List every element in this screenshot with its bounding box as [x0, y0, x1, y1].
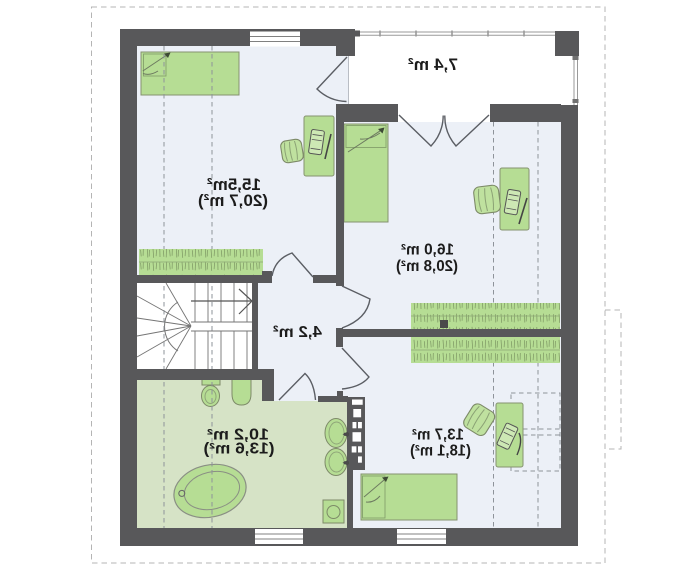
svg-text:(13,6 m²): (13,6 m²): [204, 441, 275, 458]
svg-text:7,4 m²: 7,4 m²: [408, 55, 458, 74]
svg-text:(20,7 m²): (20,7 m²): [198, 191, 268, 210]
svg-text:(20,8 m²): (20,8 m²): [396, 258, 458, 275]
svg-text:13,7 m²: 13,7 m²: [412, 427, 464, 444]
svg-text:16,0 m²: 16,0 m²: [401, 242, 454, 259]
svg-text:(18,1 m²): (18,1 m²): [410, 443, 471, 460]
svg-text:4,2 m²: 4,2 m²: [273, 324, 322, 341]
